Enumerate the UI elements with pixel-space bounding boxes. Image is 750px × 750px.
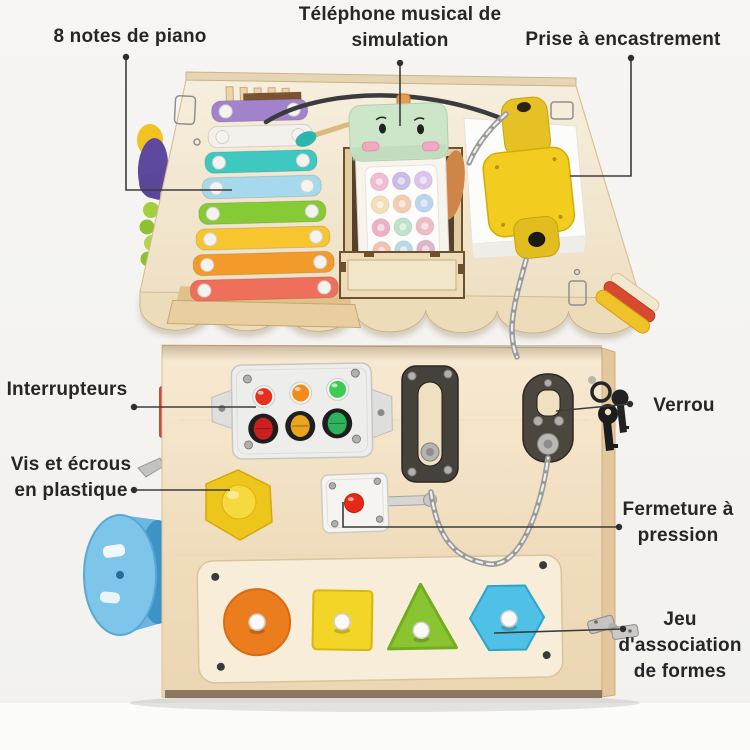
indicator-light-orange	[289, 382, 311, 404]
product-photo: 8 notes de piano Téléphone musical de si…	[0, 0, 750, 750]
label-phone: Téléphone musical de simulation	[283, 2, 517, 54]
label-press-latch: Fermeture à pression	[610, 497, 746, 549]
chain-lock-plate	[523, 374, 573, 462]
label-shape-game: Jeu d'association de formes	[613, 607, 747, 685]
switch-panel	[211, 362, 393, 459]
label-switches: Interrupteurs	[0, 377, 134, 403]
label-piano-notes: 8 notes de piano	[20, 24, 240, 50]
label-socket: Prise à encastrement	[503, 27, 743, 53]
label-lock: Verrou	[636, 393, 732, 419]
shape-board	[197, 555, 563, 683]
label-screws-nuts: Vis et écrous en plastique	[0, 452, 142, 504]
indicator-light-red	[253, 385, 275, 407]
chain-track-plate	[402, 366, 458, 482]
indicator-light-green	[326, 378, 348, 400]
